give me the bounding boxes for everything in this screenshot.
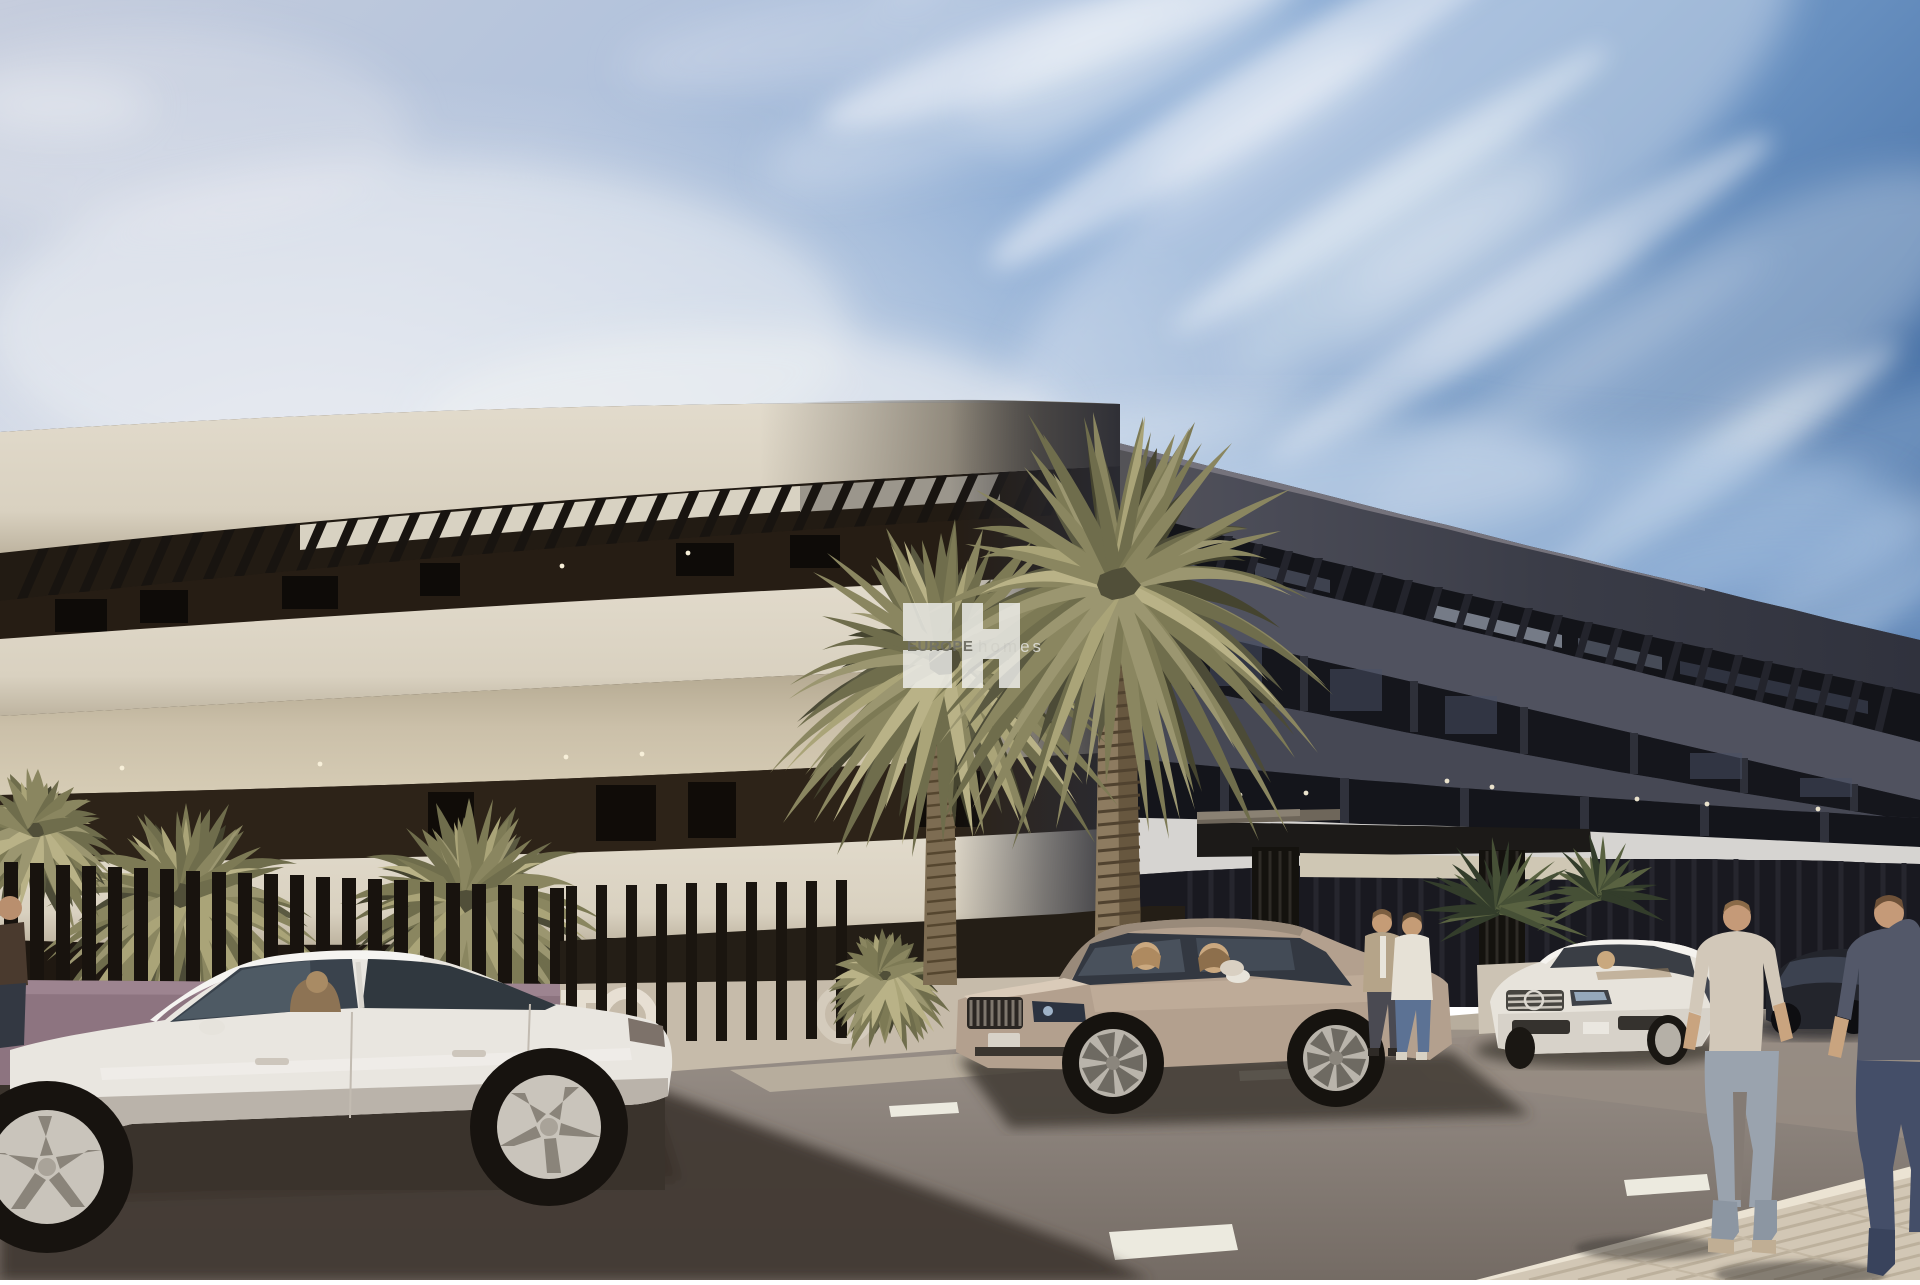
svg-text:EUROPE: EUROPE [907, 638, 973, 655]
svg-text:homes: homes [978, 637, 1044, 656]
